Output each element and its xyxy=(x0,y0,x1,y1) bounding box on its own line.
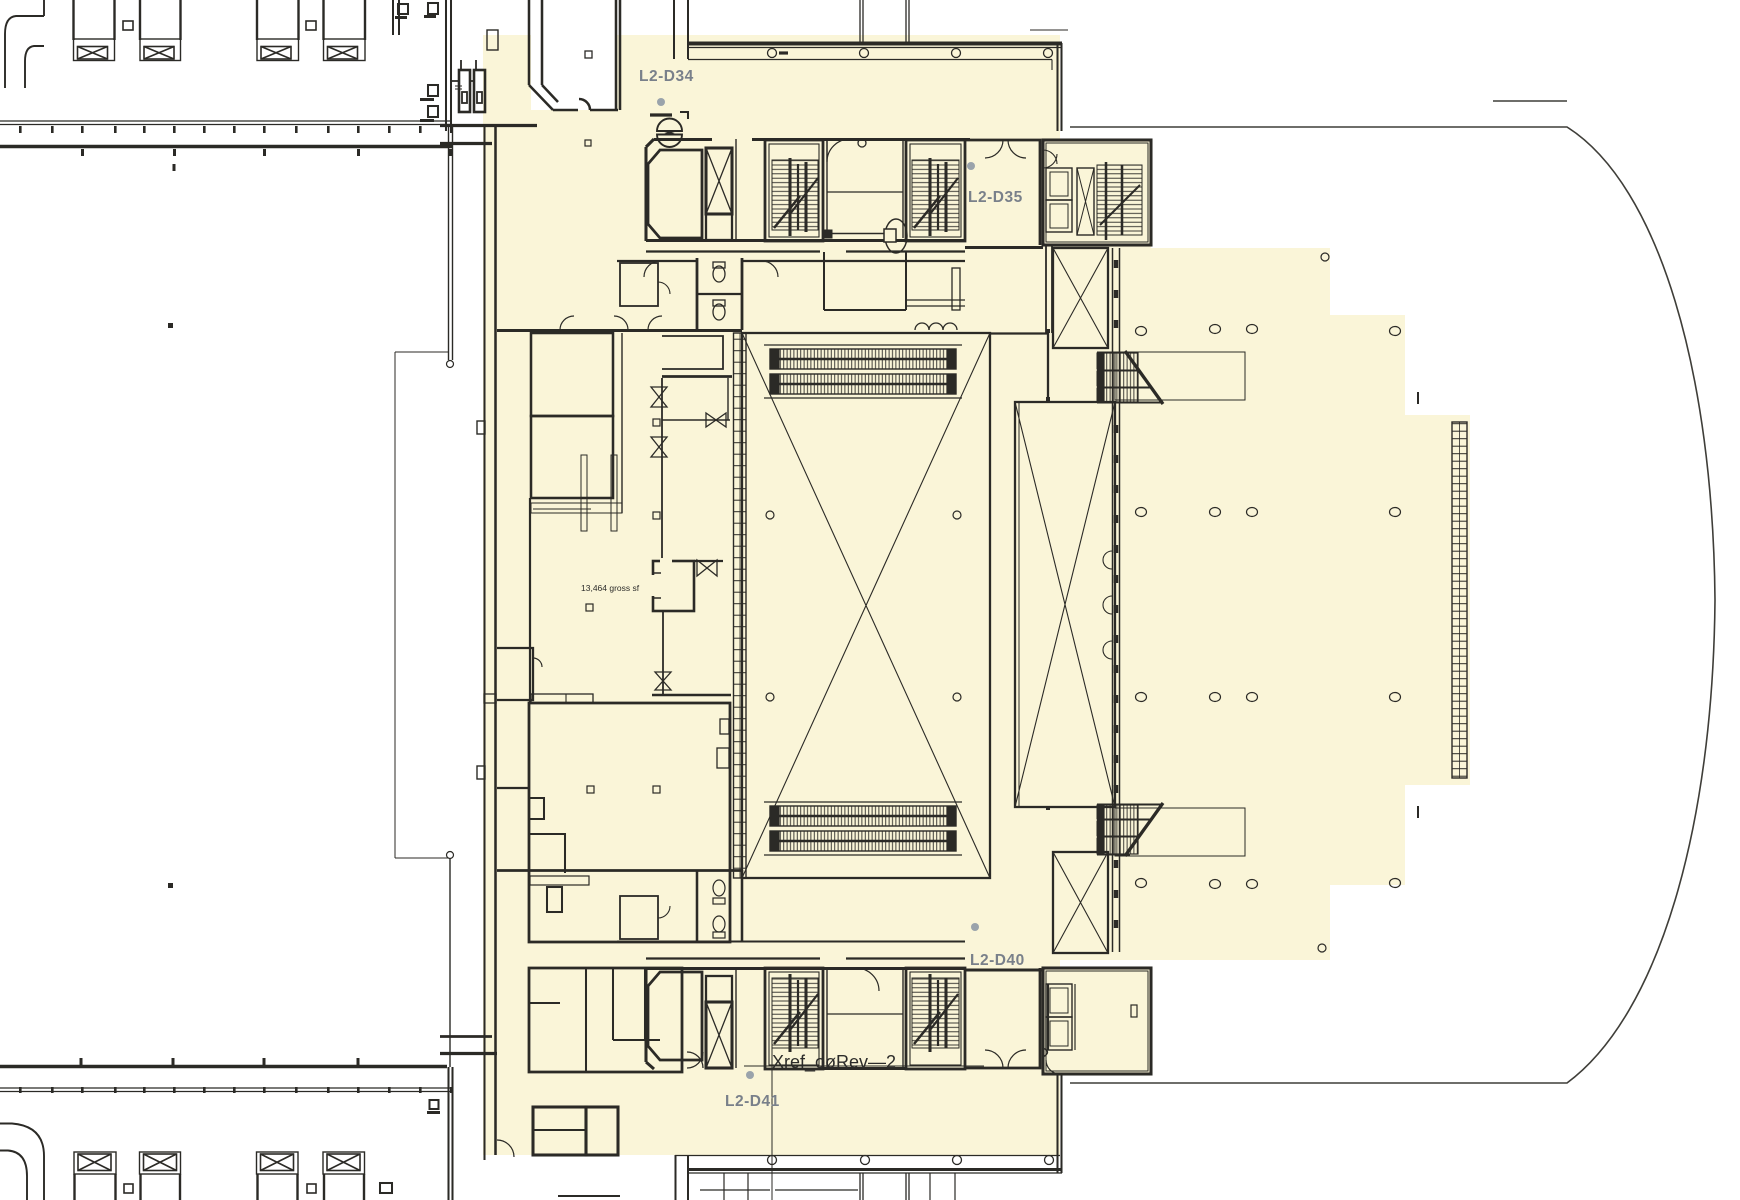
svg-text:Xref_oøRev—2: Xref_oøRev—2 xyxy=(772,1052,896,1073)
svg-text:L2-D34: L2-D34 xyxy=(639,68,694,85)
svg-text:L2-D35: L2-D35 xyxy=(968,189,1023,206)
svg-text:L2-D40: L2-D40 xyxy=(970,952,1025,969)
svg-text:L2-D41: L2-D41 xyxy=(725,1093,780,1110)
svg-text:13,464 gross sf: 13,464 gross sf xyxy=(581,583,640,593)
